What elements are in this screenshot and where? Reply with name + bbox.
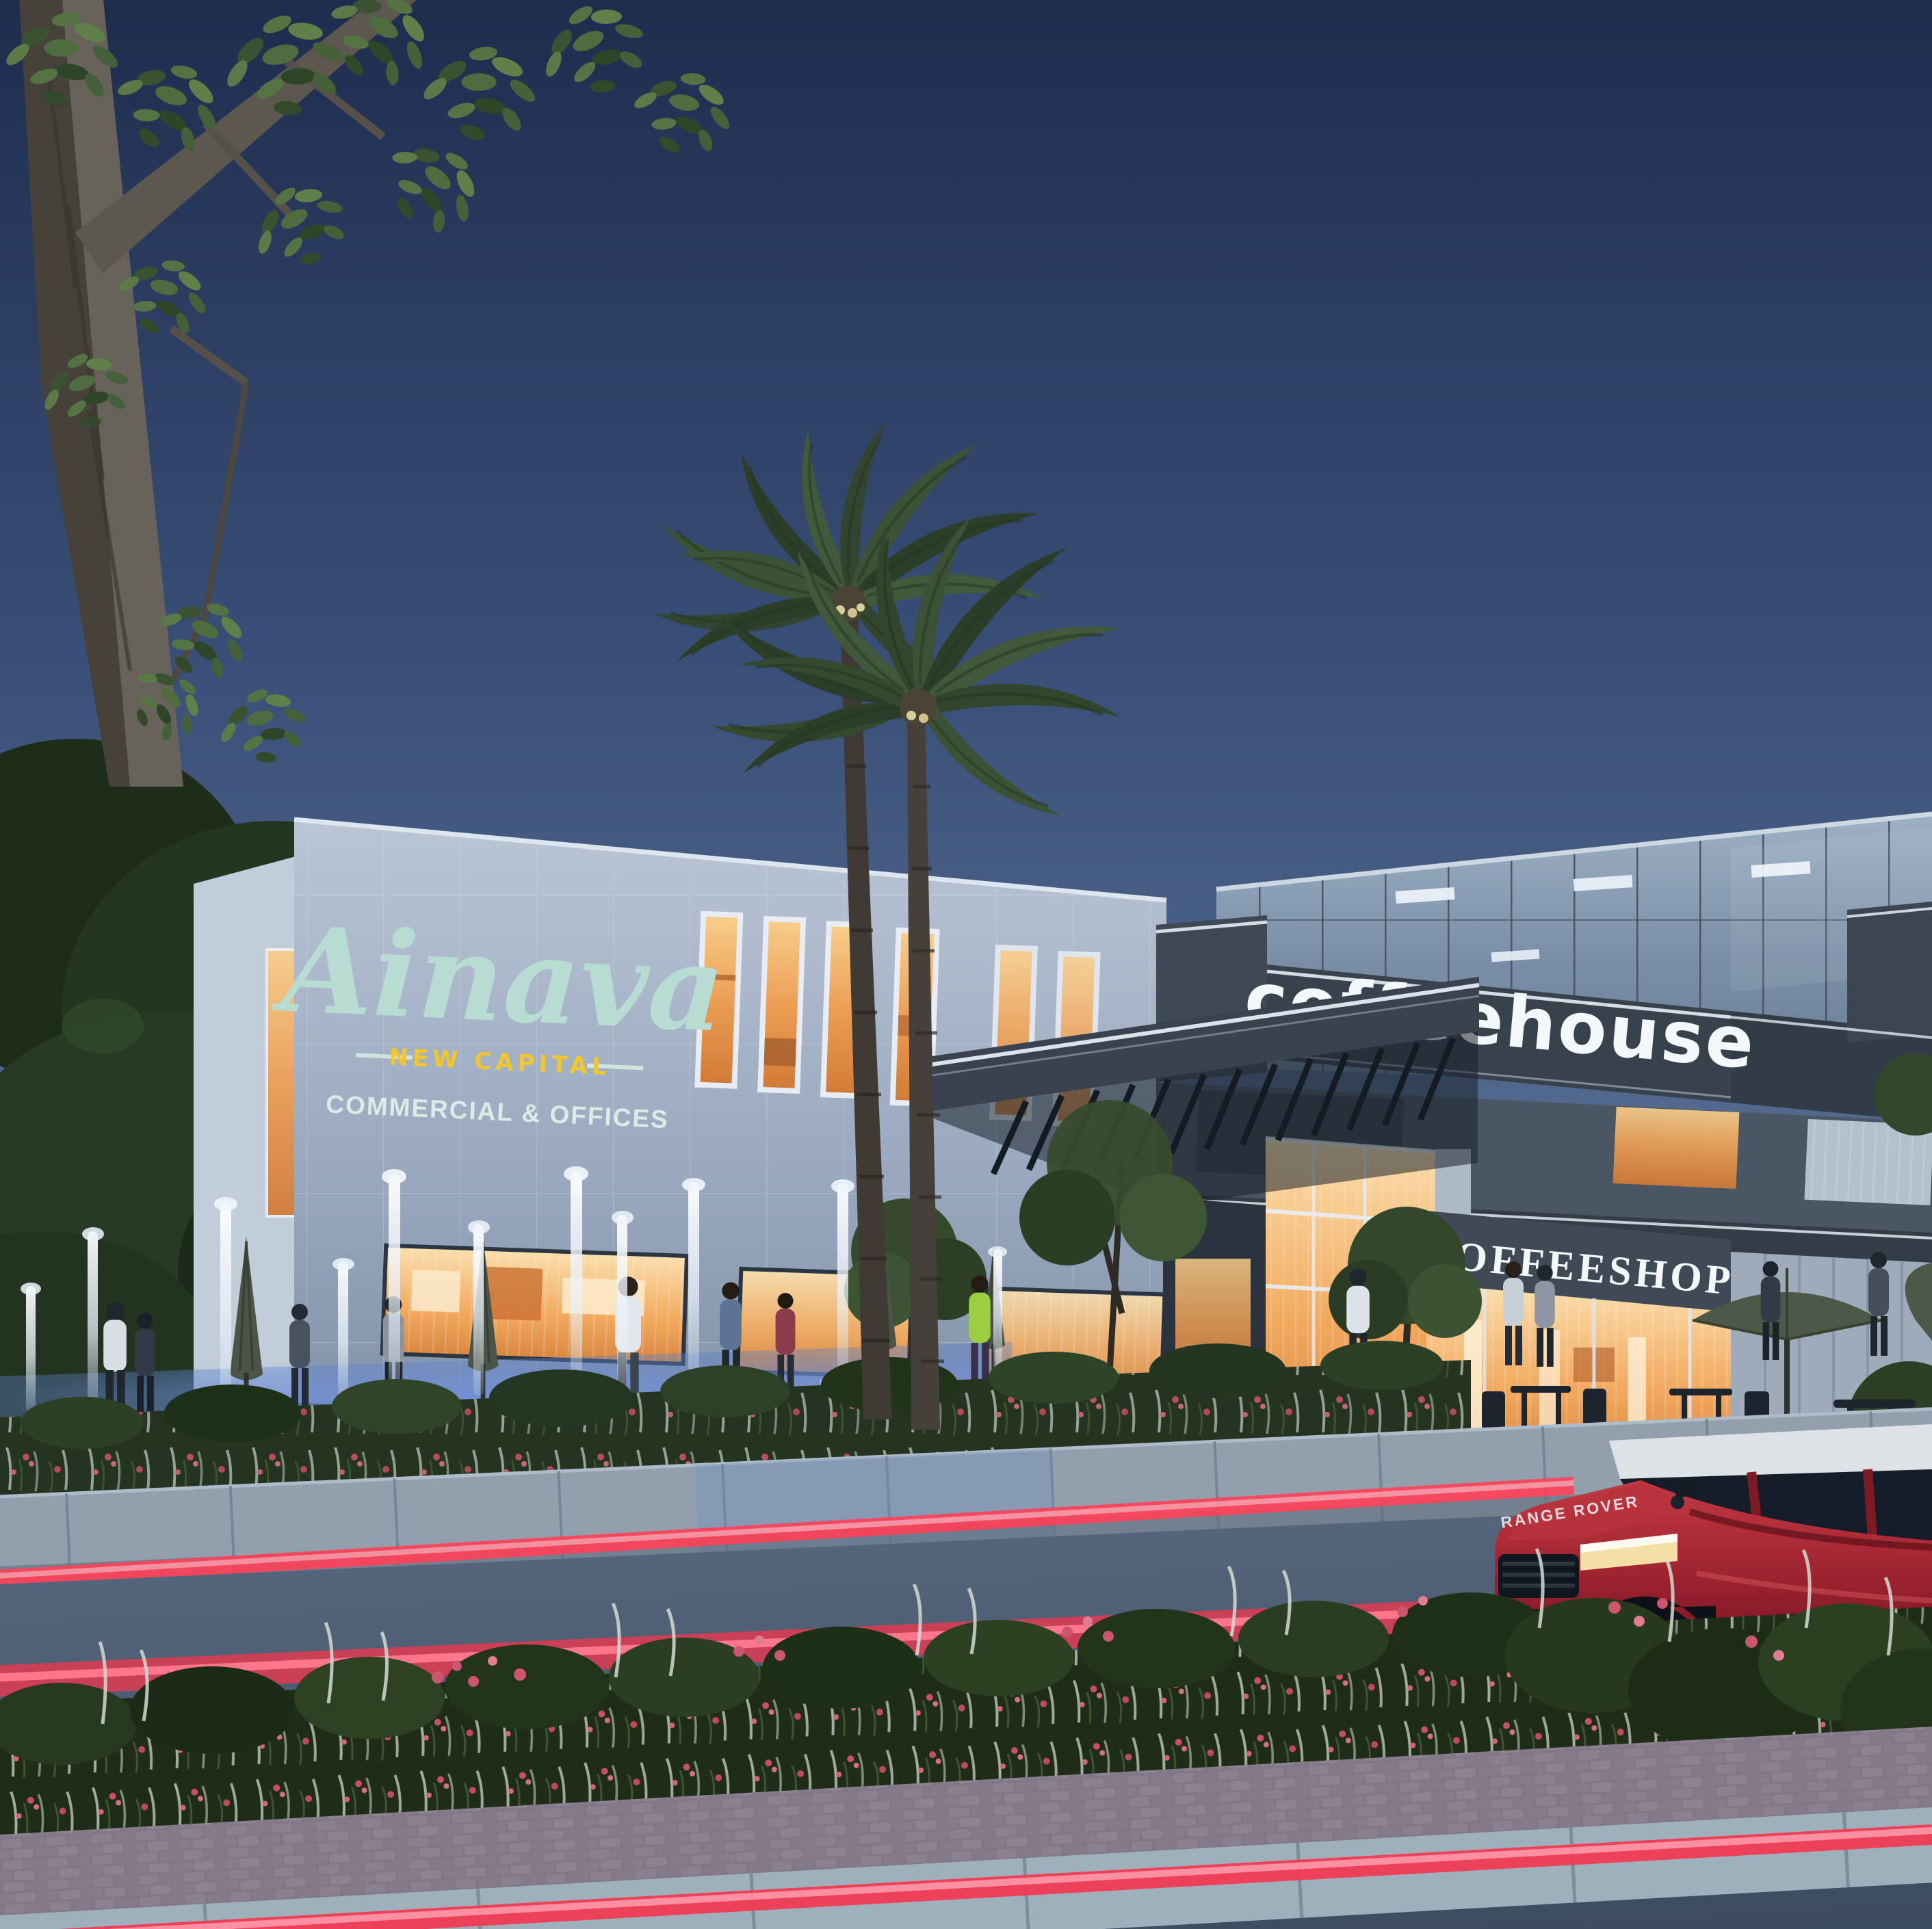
brand-sign: Ainava: [270, 900, 727, 1059]
rendering-scene: Ainava NEW CAPITAL COMMERCIAL & OFFICES: [0, 0, 1932, 1929]
